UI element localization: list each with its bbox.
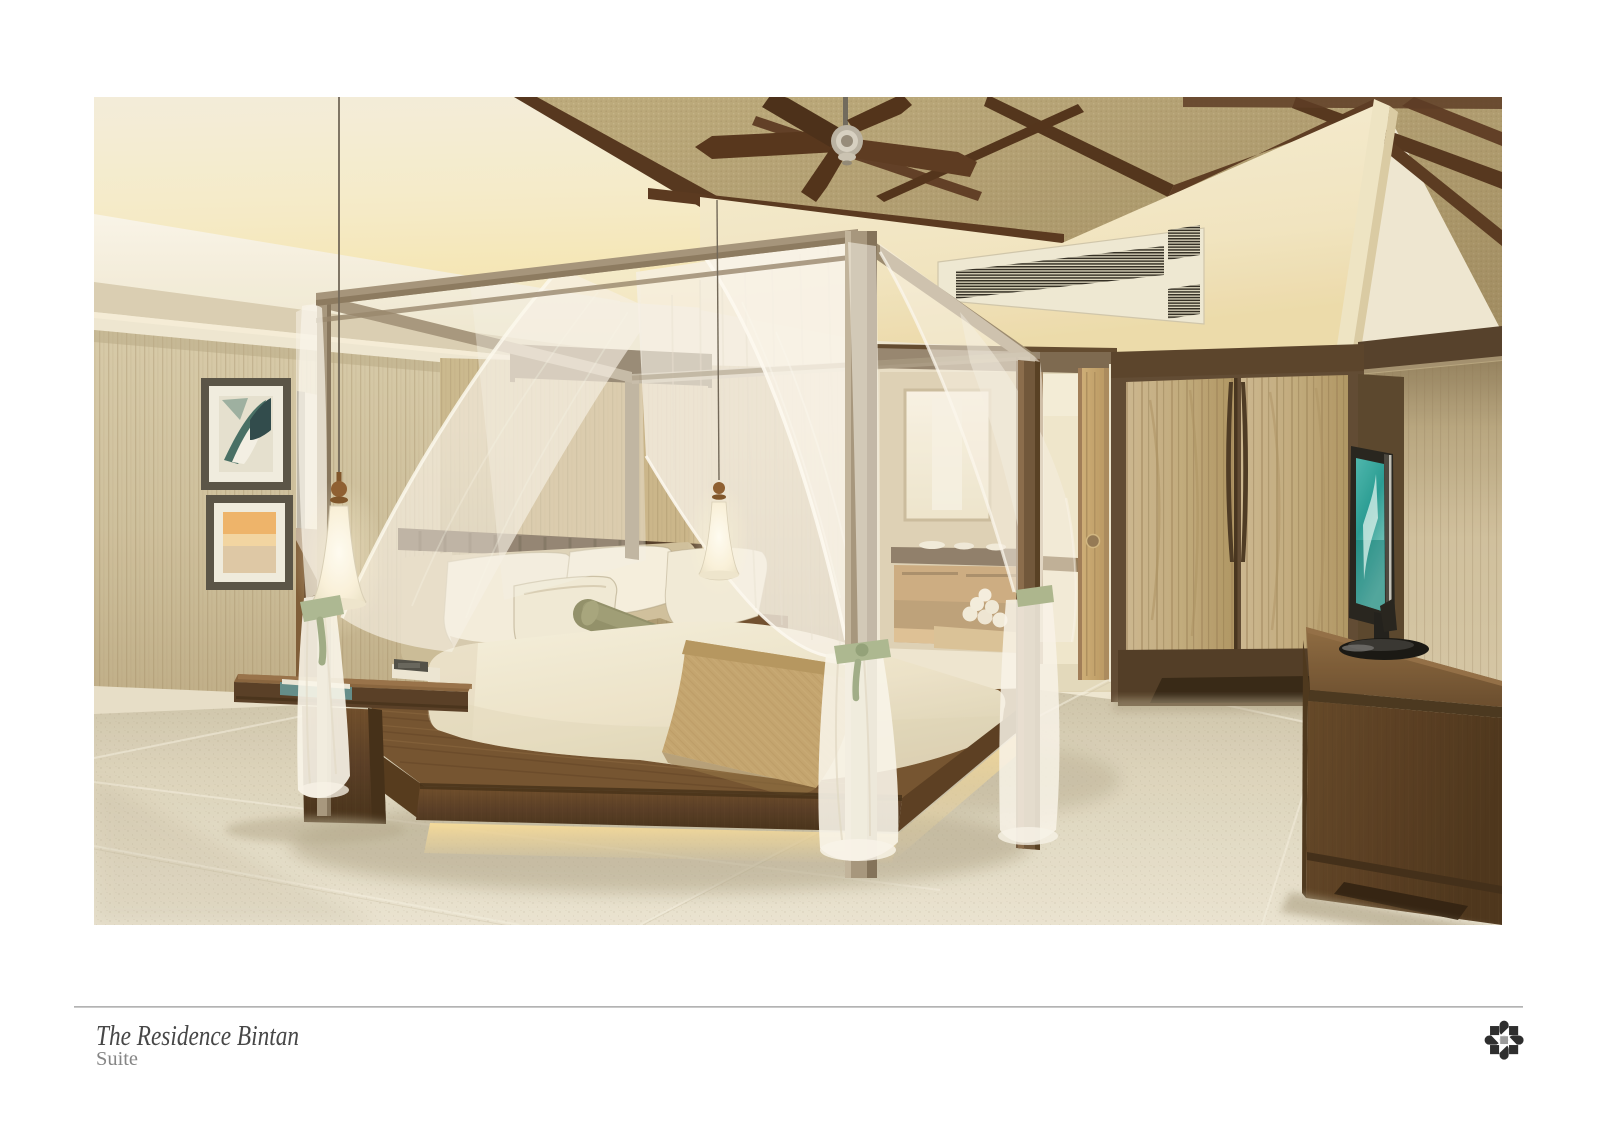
svg-text:Suite: Suite bbox=[96, 1048, 138, 1070]
